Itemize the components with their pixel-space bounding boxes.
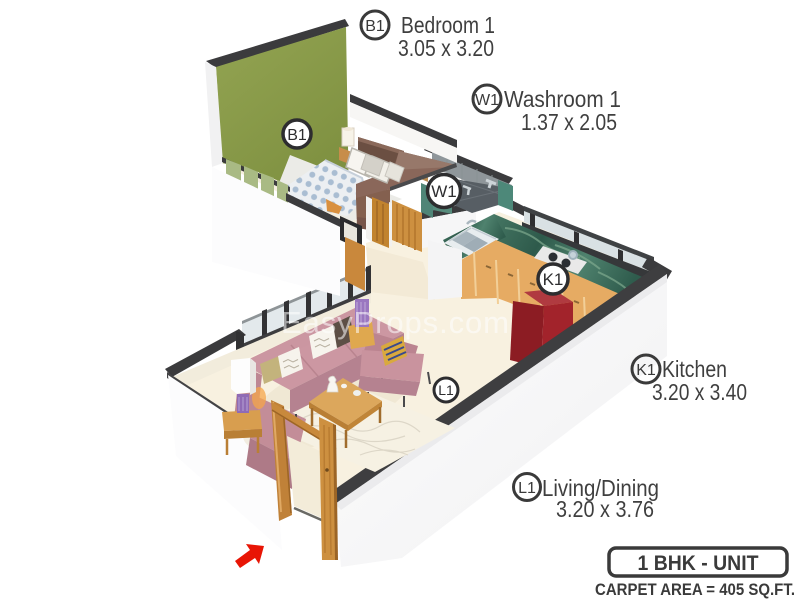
svg-text:CARPET AREA = 405 SQ.FT.: CARPET AREA = 405 SQ.FT. (595, 580, 795, 599)
svg-text:K1: K1 (543, 270, 564, 289)
svg-text:EasyProps.com: EasyProps.com (281, 305, 509, 340)
svg-text:B1: B1 (287, 127, 307, 144)
svg-text:3.20 x 3.40: 3.20 x 3.40 (652, 379, 747, 405)
svg-text:K1: K1 (636, 362, 656, 379)
svg-text:W1: W1 (475, 92, 499, 109)
svg-text:1 BHK - UNIT: 1 BHK - UNIT (638, 552, 759, 575)
svg-text:3.05 x 3.20: 3.05 x 3.20 (398, 35, 494, 61)
svg-text:L1: L1 (518, 480, 536, 497)
svg-text:1.37 x 2.05: 1.37 x 2.05 (521, 109, 617, 135)
svg-text:3.20 x 3.76: 3.20 x 3.76 (556, 496, 654, 522)
svg-text:W1: W1 (431, 182, 457, 201)
svg-text:B1: B1 (365, 18, 385, 35)
svg-text:L1: L1 (438, 382, 454, 398)
